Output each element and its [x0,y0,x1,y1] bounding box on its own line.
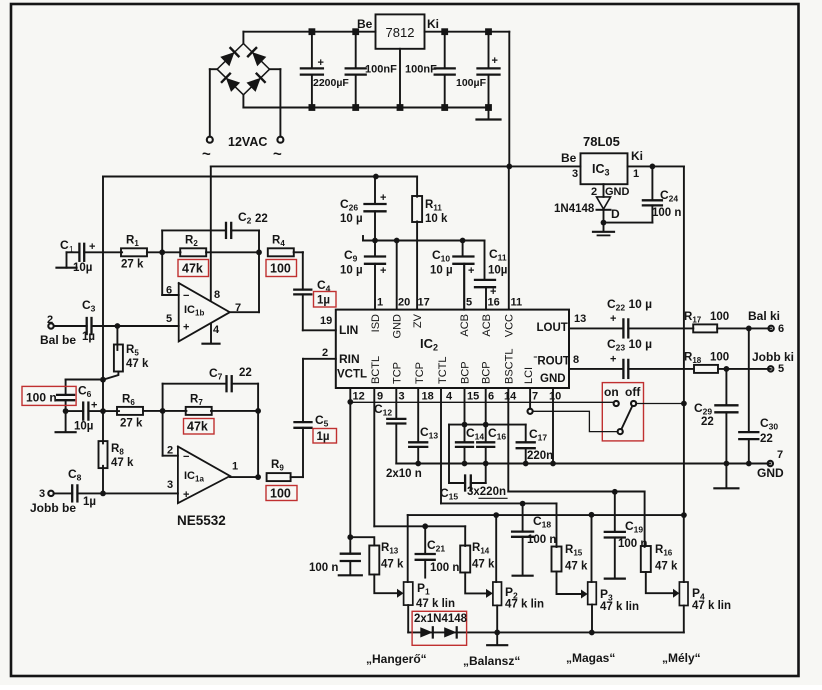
svg-text:3: 3 [39,488,45,500]
svg-text:11: 11 [511,297,523,309]
svg-text:47k: 47k [187,420,208,434]
svg-text:2x10 n: 2x10 n [386,468,422,480]
svg-text:100 n: 100 n [26,391,57,405]
svg-text:100 n: 100 n [309,562,338,574]
svg-text:6: 6 [488,391,494,403]
svg-text:3x220n: 3x220n [467,486,506,498]
svg-text:4: 4 [446,391,453,403]
svg-text:RIN: RIN [339,352,360,366]
svg-text:BCTL: BCTL [370,356,382,384]
svg-text:1µ: 1µ [82,331,95,343]
svg-text:+: + [91,400,97,412]
svg-text:+: + [183,489,189,501]
svg-text:1N4148: 1N4148 [554,203,595,215]
svg-text:2200µF: 2200µF [313,77,349,89]
svg-text:10µ: 10µ [74,421,93,433]
svg-text:47 k: 47 k [565,561,588,573]
svg-text:on: on [604,385,619,399]
svg-text:47 k: 47 k [655,561,678,573]
svg-text:5: 5 [166,313,172,325]
svg-text:Bal ki: Bal ki [748,309,780,323]
svg-text:1: 1 [377,297,383,309]
svg-text:TCP: TCP [414,362,426,384]
svg-text:2: 2 [322,347,328,359]
svg-text:VCTL: VCTL [337,369,367,381]
svg-text:7: 7 [532,391,538,403]
svg-text:22: 22 [760,433,773,445]
svg-text:Be: Be [561,151,577,165]
svg-text:10 µ: 10 µ [340,265,363,277]
svg-text:Jobb ki: Jobb ki [752,350,794,364]
svg-text:17: 17 [418,297,430,309]
svg-text:100: 100 [270,262,291,276]
svg-text:1: 1 [232,461,238,473]
svg-text:+: + [380,192,386,204]
svg-text:47k: 47k [182,262,203,276]
svg-text:ACB: ACB [481,314,493,337]
svg-text:GND: GND [392,314,404,339]
svg-text:2: 2 [167,445,173,457]
svg-text:BCP: BCP [481,361,493,384]
svg-text:+: + [89,241,95,253]
svg-text:4: 4 [213,324,220,336]
svg-text:100nF: 100nF [405,64,437,76]
svg-text:LCI: LCI [523,367,535,384]
svg-text:5: 5 [466,297,472,309]
svg-text:7: 7 [777,449,783,461]
svg-text:„Magas“: „Magas“ [566,651,615,665]
svg-text:100: 100 [270,487,291,501]
svg-text:−: − [183,290,189,302]
svg-text:100: 100 [710,311,729,323]
svg-text:C: C [60,238,69,252]
svg-text:GND: GND [540,373,566,385]
svg-text:22: 22 [701,416,714,428]
svg-text:10 µ: 10 µ [430,265,453,277]
svg-text:27 k: 27 k [120,418,143,430]
svg-text:14: 14 [504,391,517,403]
svg-text:22: 22 [239,367,252,379]
svg-text:47 k lin: 47 k lin [505,599,544,611]
svg-text:TCP: TCP [391,362,403,384]
svg-text:+: + [183,322,189,334]
svg-text:3: 3 [399,391,405,403]
svg-text:78L05: 78L05 [583,134,620,149]
svg-text:TCTL: TCTL [437,357,449,385]
svg-text:+: + [380,265,386,277]
svg-text:~: ~ [273,146,282,163]
svg-text:„Balansz“: „Balansz“ [463,654,520,668]
svg-text:10µ: 10µ [488,265,507,277]
svg-text:+: + [610,354,616,366]
svg-text:~: ~ [202,146,211,163]
svg-text:3: 3 [572,168,578,180]
svg-text:−: − [183,451,189,463]
svg-text:18: 18 [422,391,434,403]
svg-text:+: + [490,286,496,298]
svg-text:off: off [625,385,641,399]
svg-text:100nF: 100nF [365,64,397,76]
svg-text:Ki: Ki [427,17,439,31]
svg-text:10µ: 10µ [73,262,92,274]
svg-text:1µ: 1µ [317,431,330,443]
svg-text:+: + [610,313,616,325]
svg-text:47 k: 47 k [381,559,404,571]
svg-text:100 n: 100 n [527,534,556,546]
svg-text:Be: Be [357,17,373,31]
svg-text:1: 1 [633,168,639,180]
svg-text:12VAC: 12VAC [228,135,267,149]
svg-text:C23 10 µ: C23 10 µ [607,337,652,353]
svg-text:100µF: 100µF [456,77,487,89]
svg-text:220n: 220n [527,450,553,462]
svg-text:„Mély“: „Mély“ [662,651,701,665]
svg-text:10 k: 10 k [425,213,448,225]
svg-text:47 k lin: 47 k lin [416,598,455,610]
svg-text:7812: 7812 [386,25,415,40]
svg-text:47 k lin: 47 k lin [692,600,731,612]
svg-text:1: 1 [69,244,74,254]
svg-text:+: + [468,265,474,277]
svg-text:22: 22 [255,213,268,225]
svg-text:ACB: ACB [459,314,471,337]
svg-text:6: 6 [778,323,784,335]
svg-text:2x1N4148: 2x1N4148 [414,613,468,625]
svg-text:VCC: VCC [504,314,516,337]
svg-text:10 µ: 10 µ [340,213,363,225]
svg-text:8: 8 [573,354,579,366]
svg-text:1µ: 1µ [83,496,96,508]
svg-text:1µ: 1µ [317,295,330,307]
svg-text:+: + [318,57,324,69]
svg-text:100 n: 100 n [618,538,647,550]
svg-text:47 k: 47 k [111,457,134,469]
svg-text:16: 16 [488,297,500,309]
svg-text:15: 15 [467,391,479,403]
svg-text:3: 3 [167,479,173,491]
svg-text:GND: GND [757,466,784,480]
svg-text:12: 12 [353,391,365,403]
svg-text:LOUT: LOUT [537,322,568,334]
svg-text:47 k: 47 k [472,559,495,571]
svg-text:9: 9 [377,391,383,403]
svg-text:20: 20 [398,297,410,309]
svg-text:NE5532: NE5532 [177,513,226,528]
svg-text:D: D [611,207,620,221]
svg-text:ISD: ISD [370,314,382,332]
svg-text:100: 100 [710,352,729,364]
svg-text:C22 10 µ: C22 10 µ [607,297,652,313]
svg-text:BSCTL: BSCTL [503,349,515,384]
svg-text:27 k: 27 k [121,259,144,271]
svg-text:BCP: BCP [460,361,472,384]
svg-text:ZV: ZV [412,313,424,328]
svg-text:47 k lin: 47 k lin [600,601,639,613]
svg-text:47 k: 47 k [126,358,149,370]
svg-text:Ki: Ki [631,149,643,163]
svg-text:13: 13 [574,313,586,325]
svg-text:10: 10 [549,391,561,403]
svg-text:LIN: LIN [339,323,358,337]
svg-text:+: + [492,55,498,67]
svg-text:8: 8 [214,289,220,301]
svg-text:5: 5 [778,363,784,375]
svg-text:Jobb be: Jobb be [30,501,76,515]
svg-text:Bal be: Bal be [40,333,76,347]
svg-text:„Hangerő“: „Hangerő“ [366,652,427,666]
svg-text:19: 19 [320,315,332,327]
svg-text:ˉROUT: ˉROUT [534,356,570,368]
svg-text:100 n: 100 n [430,562,459,574]
svg-text:100 n: 100 n [652,207,681,219]
